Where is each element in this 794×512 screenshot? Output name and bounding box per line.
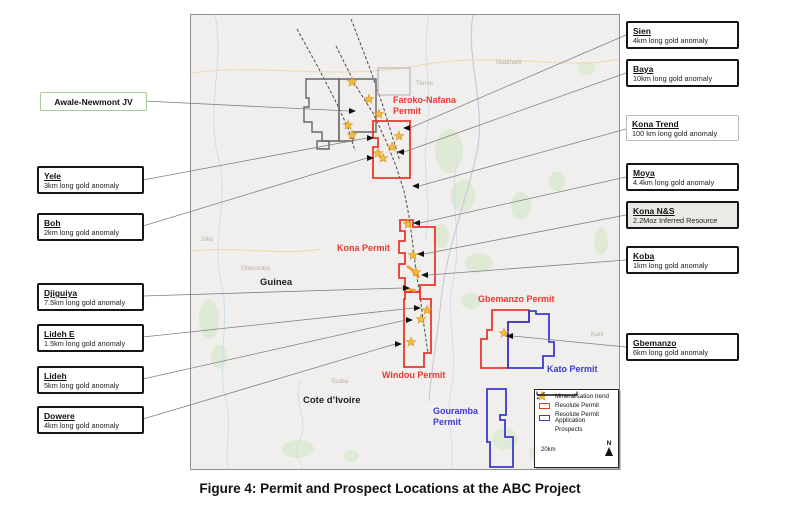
legend-item-prospects: Prospects <box>539 427 615 434</box>
permit-label-faroko-nafana: Faroko-Nafana Permit <box>393 95 456 117</box>
callout-subtitle: 3km long gold anomaly <box>44 181 137 190</box>
callout-subtitle: 1km long gold anomaly <box>633 261 732 270</box>
callout-title: Lideh <box>44 371 137 381</box>
callout-title: Dowere <box>44 411 137 421</box>
callout-title: Djiguiya <box>44 288 137 298</box>
callout-box-boh: Boh 2km long gold anomaly <box>37 213 144 241</box>
callout-box-koba: Koba 1km long gold anomaly <box>626 246 739 274</box>
callout-subtitle: 4km long gold anomaly <box>633 36 732 45</box>
callout-title: Moya <box>633 168 732 178</box>
callout-title: Yele <box>44 171 137 181</box>
callout-title: Baya <box>633 64 732 74</box>
permit-label-windou: Windou Permit <box>382 370 445 381</box>
callout-subtitle: 2km long gold anomaly <box>44 228 137 237</box>
callout-subtitle: 10km long gold anomaly <box>633 74 732 83</box>
callout-box-gbemanzo: Gbemanzo 6km long gold anomaly <box>626 333 739 361</box>
callout-title: Koba <box>633 251 732 261</box>
map-legend: Mineralisation trend Resolute Permit Res… <box>534 389 619 468</box>
permit-outline-gouramba <box>487 389 513 467</box>
jv-application-outline <box>378 68 410 95</box>
north-arrow-icon: N <box>605 440 613 456</box>
callout-box-awale-newmont-jv: Awale-Newmont JV <box>40 92 147 111</box>
country-boundary-line <box>429 15 479 401</box>
callout-subtitle: 6km long gold anomaly <box>633 348 732 357</box>
callout-title: Gbemanzo <box>633 338 732 348</box>
callout-title: Kona Trend <box>632 119 733 129</box>
callout-subtitle: 1.5km long gold anomaly <box>44 339 137 348</box>
callout-box-sien: Sien 4km long gold anomaly <box>626 21 739 49</box>
prospect-star <box>406 337 415 346</box>
country-label-guinea: Guinea <box>260 277 292 288</box>
permit-outline-gbemanzo <box>481 310 529 368</box>
permit-label-gouramba: Gouramba Permit <box>433 406 478 428</box>
callout-box-lideh-e: Lideh E 1.5km long gold anomaly <box>37 324 144 352</box>
mineralisation-trend-lines <box>297 19 428 353</box>
callout-subtitle: 7.5km long gold anomaly <box>44 298 137 307</box>
country-label-cote-divoire: Cote d’Ivoire <box>303 395 361 406</box>
callout-box-kona-trend: Kona Trend 100 km long gold anomaly <box>626 115 739 141</box>
callout-box-kona-ns: Kona N&S 2.2Moz Inferred Resource <box>626 201 739 229</box>
place-label: Siko <box>201 236 213 243</box>
callout-box-lideh: Lideh 5km long gold anomaly <box>37 366 144 394</box>
permit-outline-kona <box>399 220 435 292</box>
prospect-stars <box>343 77 508 346</box>
map-frame: Faroko-Nafana Permit Kona Permit Gbemanz… <box>190 14 620 470</box>
callout-box-yele: Yele 3km long gold anomaly <box>37 166 144 194</box>
callout-box-moya: Moya 4.4km long gold anomaly <box>626 163 739 191</box>
callout-box-dowere: Dowere 4km long gold anomaly <box>37 406 144 434</box>
place-label: Madinani <box>496 59 522 66</box>
prospect-star <box>408 250 417 259</box>
callout-subtitle: 100 km long gold anomaly <box>632 129 733 138</box>
place-label: Gbessoba <box>241 265 270 272</box>
permit-label-gbemanzo: Gbemanzo Permit <box>478 294 555 305</box>
prospect-star <box>387 142 396 151</box>
legend-item-permit-application: Resolute Permit Application <box>539 412 615 426</box>
permit-label-kato: Kato Permit <box>547 364 598 375</box>
document-page: Faroko-Nafana Permit Kona Permit Gbemanz… <box>0 0 794 512</box>
callout-title: Boh <box>44 218 137 228</box>
callout-subtitle: 5km long gold anomaly <box>44 381 137 390</box>
callout-box-djiguiya: Djiguiya 7.5km long gold anomaly <box>37 283 144 311</box>
permit-application-icon <box>539 415 555 421</box>
legend-item-resolute-permit: Resolute Permit <box>539 403 615 410</box>
prospect-star <box>373 148 382 157</box>
jv-boundary-outline <box>304 79 376 149</box>
callout-title: Sien <box>633 26 732 36</box>
figure-caption: Figure 4: Permit and Prospect Locations … <box>150 481 630 496</box>
permit-outline-windou <box>404 292 431 367</box>
callout-box-baya: Baya 10km long gold anomaly <box>626 59 739 87</box>
callout-subtitle: 2.2Moz Inferred Resource <box>633 216 732 225</box>
callout-title: Kona N&S <box>633 206 732 216</box>
callout-title: Lideh E <box>44 329 137 339</box>
callout-subtitle: 4km long gold anomaly <box>44 421 137 430</box>
resolute-permit-icon <box>539 403 555 409</box>
prospect-star <box>416 314 425 323</box>
permit-label-kona: Kona Permit <box>337 243 390 254</box>
permit-outline-kato <box>508 311 554 368</box>
place-label: Kani <box>591 331 604 338</box>
callout-subtitle: 4.4km long gold anomaly <box>633 178 732 187</box>
place-label: Tieme <box>416 80 433 87</box>
scale-bar: 20km <box>541 438 556 456</box>
place-label: Touba <box>331 378 348 385</box>
prospect-star <box>364 94 373 103</box>
prospect-star <box>394 131 403 140</box>
callout-title: Awale-Newmont JV <box>43 97 144 107</box>
